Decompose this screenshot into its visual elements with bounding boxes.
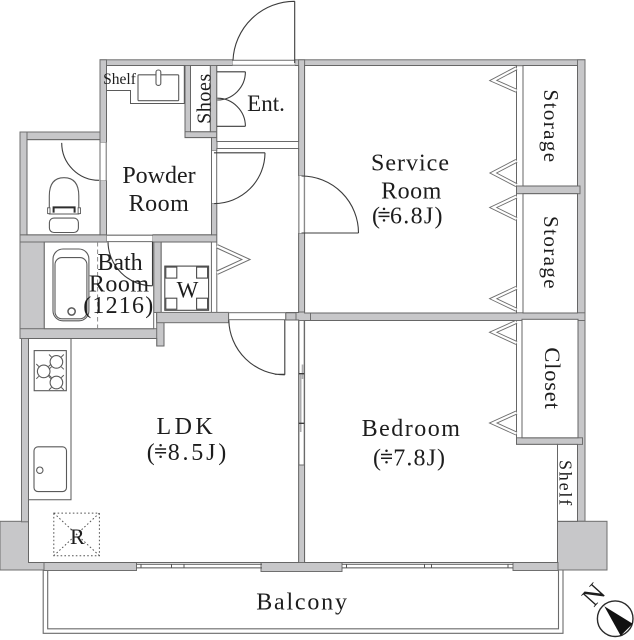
svg-text:Service: Service — [371, 150, 450, 176]
svg-text:(: ( — [373, 445, 381, 471]
svg-text:Closet: Closet — [540, 347, 565, 409]
svg-text:Storage: Storage — [539, 216, 563, 290]
svg-text:(1216): (1216) — [83, 293, 154, 319]
svg-text:Bedroom: Bedroom — [362, 416, 462, 442]
svg-text:7.8J): 7.8J) — [393, 445, 446, 471]
svg-text:Ent.: Ent. — [247, 91, 285, 116]
svg-text:Shelf: Shelf — [556, 460, 576, 507]
svg-text:Powder: Powder — [122, 163, 195, 189]
svg-text:R: R — [70, 524, 85, 549]
svg-text:(: ( — [147, 440, 155, 466]
svg-text:Room: Room — [381, 179, 442, 205]
svg-text:8.5J): 8.5J) — [168, 440, 229, 466]
svg-text:LDK: LDK — [157, 414, 217, 440]
svg-text:W: W — [177, 277, 199, 302]
svg-text:6.8J): 6.8J) — [390, 203, 444, 229]
svg-text:Shoes: Shoes — [194, 73, 216, 124]
svg-text:Shelf: Shelf — [103, 71, 137, 88]
svg-text:Balcony: Balcony — [256, 590, 349, 616]
svg-text:Room: Room — [129, 191, 190, 217]
svg-text:Storage: Storage — [539, 90, 563, 164]
